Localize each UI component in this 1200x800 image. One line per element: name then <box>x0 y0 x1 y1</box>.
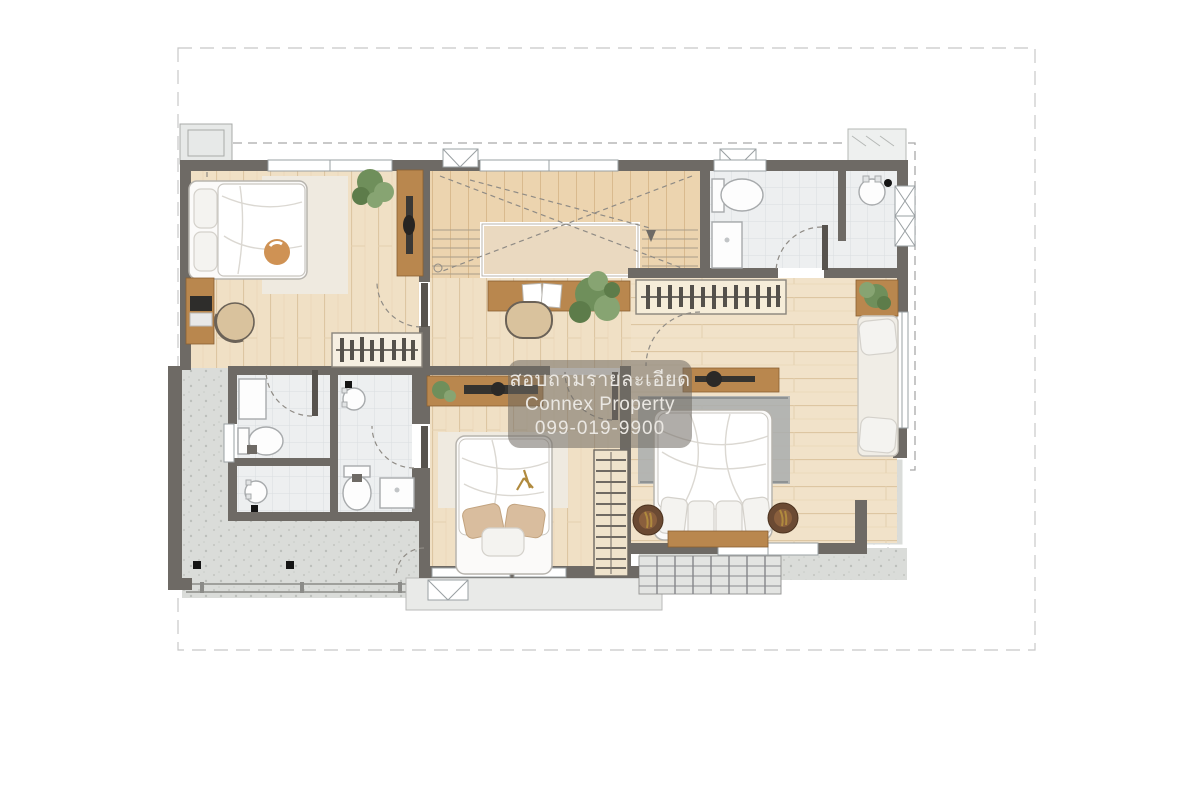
louver-canopy <box>639 556 781 594</box>
bedroom1-chair <box>216 303 254 341</box>
bathroom-top-toilet <box>712 179 763 212</box>
stair-landing <box>482 224 638 276</box>
bathroom-top-window <box>714 160 766 171</box>
bathroom-a-toilet <box>238 427 283 455</box>
bedroom1-tv-console <box>397 170 423 276</box>
staircase <box>430 171 700 278</box>
bathroom-top-door <box>822 225 828 270</box>
terrace-drain <box>193 561 201 569</box>
bedroom1-desk <box>186 278 214 344</box>
master-tv-console <box>683 368 779 392</box>
watermark-brand-line: Connex Property <box>525 394 675 416</box>
floor-plan-image: สอบถามรายละเอียด Connex Property 099-019… <box>0 0 1200 800</box>
bathroom-b-toilet <box>343 466 371 510</box>
window-seat <box>856 280 898 456</box>
bedroom2-bed <box>456 436 552 574</box>
master-bed-bench <box>668 531 768 547</box>
bathroom-b-vanity <box>380 478 414 508</box>
bedroom1-bed <box>189 181 307 279</box>
bathroom-b-sink <box>342 388 365 410</box>
master-side-stool-right <box>768 503 798 533</box>
bedroom2-shelf <box>594 450 628 576</box>
master-clothes-rack <box>636 280 786 314</box>
terrace-drain <box>286 561 294 569</box>
bathroom-a-vanity <box>239 379 266 419</box>
watermark-phone-line: 099-019-9900 <box>535 418 665 440</box>
awning-window-bedroom2 <box>428 580 468 600</box>
bathroom-b-door <box>421 426 428 468</box>
hall-clothes-rack <box>332 333 422 367</box>
bathroom-a-door <box>312 370 318 416</box>
awning-window-stair <box>443 149 478 167</box>
watermark: สอบถามรายละเอียด Connex Property 099-019… <box>508 360 692 448</box>
laptop-keyboard <box>190 313 212 326</box>
bathroom-left-window <box>224 424 234 462</box>
watermark-thai-line: สอบถามรายละเอียด <box>509 369 690 392</box>
bathroom-top-vanity <box>712 222 742 268</box>
right-wall-window-upper <box>895 186 915 246</box>
bathroom-a2-sink <box>245 480 267 503</box>
master-side-stool-left <box>633 505 663 535</box>
master-tv <box>695 376 755 382</box>
bedroom1-door <box>421 283 428 327</box>
hall-chair <box>506 302 552 338</box>
laptop-screen <box>190 296 212 311</box>
